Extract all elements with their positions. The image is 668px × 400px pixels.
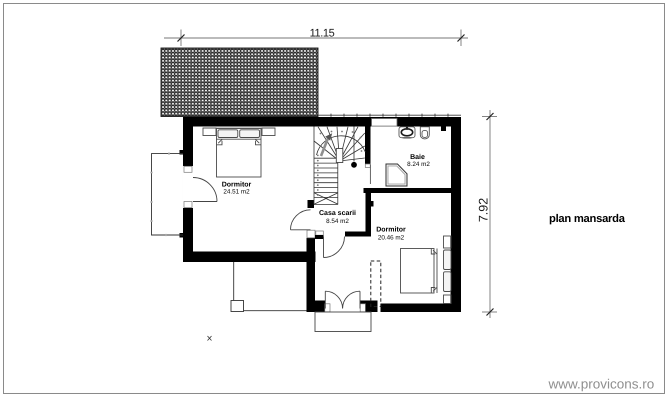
svg-text:www.provicons.ro: www.provicons.ro — [547, 376, 654, 391]
svg-text:8.24 m2: 8.24 m2 — [407, 161, 430, 168]
svg-text:Baie: Baie — [410, 153, 425, 161]
svg-text:11.15: 11.15 — [310, 28, 335, 40]
svg-text:Casa scarii: Casa scarii — [319, 209, 356, 217]
svg-text:Dormitor: Dormitor — [222, 180, 252, 188]
svg-text:plan mansarda: plan mansarda — [549, 213, 626, 225]
svg-text:20.46 m2: 20.46 m2 — [378, 235, 405, 242]
svg-text:7.92: 7.92 — [476, 198, 490, 222]
svg-text:Dormitor: Dormitor — [376, 225, 406, 233]
svg-text:8.54 m2: 8.54 m2 — [326, 218, 349, 225]
svg-text:24.51 m2: 24.51 m2 — [223, 189, 250, 196]
